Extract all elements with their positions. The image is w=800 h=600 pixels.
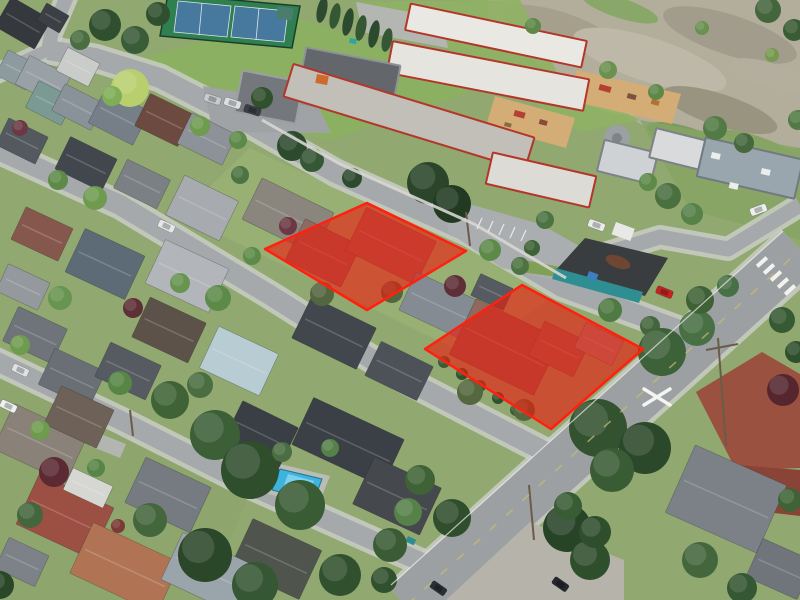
tree-highlight (230, 132, 241, 143)
tree-highlight (683, 204, 696, 217)
tree-highlight (688, 287, 705, 304)
tree-highlight (682, 312, 704, 334)
tree-highlight (91, 11, 110, 30)
terrain-layer (0, 0, 800, 600)
tree-highlight (705, 117, 719, 131)
tree-highlight (253, 88, 266, 101)
tree-highlight (769, 376, 788, 395)
tree-highlight (88, 460, 99, 471)
tree-highlight (373, 568, 389, 584)
tree-highlight (19, 503, 35, 519)
tree-highlight (396, 499, 413, 516)
tree-highlight (642, 317, 654, 329)
tree-highlight (85, 187, 99, 201)
satellite-scene (0, 0, 800, 600)
tree-highlight (556, 493, 573, 510)
tree-highlight (207, 286, 223, 302)
tree-highlight (189, 373, 205, 389)
tree-highlight (410, 164, 435, 189)
tree-highlight (322, 556, 347, 581)
tree-highlight (154, 383, 177, 406)
tree-highlight (736, 134, 748, 146)
tree-highlight (623, 425, 654, 456)
tree-highlight (244, 248, 255, 259)
tree-highlight (322, 440, 333, 451)
tree-highlight (729, 575, 747, 593)
tree-highlight (657, 184, 673, 200)
tree-highlight (194, 413, 224, 443)
tree-highlight (436, 501, 459, 524)
tree-highlight (436, 187, 459, 210)
tree-highlight (104, 87, 116, 99)
tree-highlight (526, 19, 536, 29)
tree-highlight (685, 544, 707, 566)
tree-highlight (407, 467, 425, 485)
aerial-map-view (0, 0, 800, 600)
tree-highlight (112, 520, 120, 528)
tree-highlight (581, 518, 600, 537)
tree-highlight (50, 171, 62, 183)
tree-highlight (110, 372, 124, 386)
tree-highlight (600, 62, 611, 73)
tree-highlight (50, 287, 64, 301)
tree-highlight (600, 299, 614, 313)
tree-highlight (780, 489, 794, 503)
tree-highlight (481, 240, 494, 253)
tree-highlight (148, 3, 162, 17)
tree-highlight (182, 531, 214, 563)
tree-highlight (512, 258, 523, 269)
tree-highlight (232, 167, 243, 178)
tree-highlight (459, 380, 475, 396)
tennis-court (174, 1, 231, 37)
tree-highlight (13, 121, 23, 131)
tree-highlight (771, 308, 787, 324)
tree-highlight (302, 149, 316, 163)
tree-highlight (32, 421, 44, 433)
tree-highlight (274, 443, 286, 455)
tree-highlight (525, 241, 535, 251)
tree-highlight (123, 27, 140, 44)
tree-highlight (235, 564, 263, 592)
tree-highlight (573, 402, 608, 437)
tree-highlight (593, 450, 619, 476)
tree-highlight (192, 117, 204, 129)
tree-highlight (537, 212, 548, 223)
tree-highlight (766, 49, 774, 57)
tree-highlight (136, 505, 156, 525)
tree-highlight (446, 276, 459, 289)
tree-highlight (376, 530, 396, 550)
tree-highlight (280, 218, 291, 229)
tree-highlight (12, 336, 24, 348)
tree-highlight (41, 459, 59, 477)
tree-highlight (279, 483, 309, 513)
tree-highlight (640, 174, 651, 185)
tree-highlight (787, 342, 800, 355)
tree-highlight (125, 299, 137, 311)
tree-highlight (172, 274, 184, 286)
tree-highlight (785, 20, 798, 33)
tree-highlight (225, 444, 260, 479)
tree-highlight (696, 22, 704, 30)
tree-highlight (649, 85, 659, 95)
tree-highlight (72, 31, 84, 43)
